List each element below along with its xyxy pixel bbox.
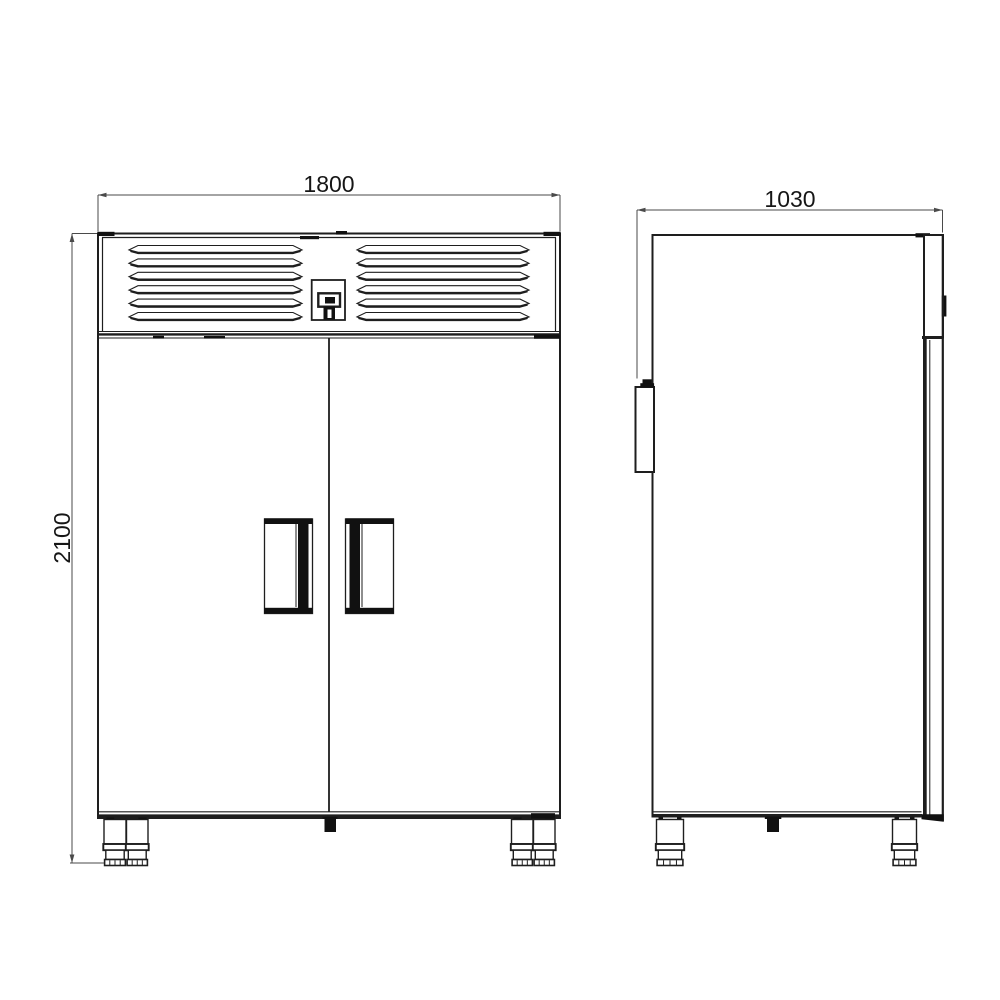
dim-arrow-left: [637, 208, 646, 213]
hinge-bracket: [924, 235, 943, 338]
top-right-corner-cap: [544, 232, 561, 236]
drain-cap: [323, 817, 338, 819]
dimension-front-height: 2100: [49, 234, 104, 864]
top-left-corner-cap: [98, 232, 115, 236]
door-top-hinge-mark-1: [153, 336, 164, 339]
junction-box: [636, 379, 655, 472]
drain-spout: [325, 819, 337, 832]
control-stem-slot: [328, 310, 332, 319]
top-edge-tick: [336, 231, 347, 235]
handle-grip: [298, 523, 309, 609]
dim-arrow-left: [98, 193, 107, 198]
leg-lower: [128, 850, 146, 859]
leg-body: [534, 820, 556, 845]
side-legs: [656, 818, 917, 866]
side-drain-spout: [767, 819, 779, 832]
door-top-hinge-mark-2: [204, 336, 225, 339]
door-bottom-wedge: [922, 814, 944, 822]
display-screen: [325, 297, 335, 304]
leg-band: [126, 844, 149, 850]
leg-band: [511, 844, 534, 850]
dim-arrow-right: [934, 208, 943, 213]
refrigerator-dimension-drawing: 1800 2100 1030: [0, 0, 1000, 1000]
door-handle-left: [264, 518, 313, 613]
leg-body: [893, 820, 917, 845]
leg-body: [127, 820, 149, 845]
dimension-front-width: 1800: [98, 171, 560, 232]
leg-body: [104, 820, 126, 845]
dim-arrow-top: [70, 234, 75, 243]
handle-bottom-bar: [346, 608, 395, 614]
dimension-front-height-label: 2100: [49, 512, 75, 563]
leg-lower: [535, 850, 553, 859]
leg-body: [657, 820, 684, 845]
leg-band: [103, 844, 126, 850]
vent-top-tick: [300, 236, 319, 239]
dim-arrow-bottom: [70, 855, 75, 864]
door-handle-right: [346, 518, 395, 613]
side-view: [636, 233, 947, 865]
front-view: [98, 231, 561, 866]
leg-lower: [658, 850, 681, 859]
side-drain-cap: [765, 817, 782, 819]
handle-bottom-bar: [264, 608, 313, 614]
door-top-hinge-mark-3: [534, 334, 560, 338]
leg-band: [533, 844, 556, 850]
dimension-side-depth-label: 1030: [764, 186, 815, 212]
leg-body: [512, 820, 534, 845]
leg-lower: [106, 850, 124, 859]
junction-box-cap-top: [643, 379, 652, 383]
dim-arrow-right: [552, 193, 561, 198]
control-panel: [312, 280, 345, 320]
handle-grip: [350, 523, 361, 609]
dimension-front-width-label: 1800: [303, 171, 354, 197]
junction-box-cap: [640, 383, 654, 387]
leg-lower: [894, 850, 914, 859]
side-cabinet-outline: [653, 235, 925, 817]
leg-band: [656, 844, 684, 850]
junction-box-body: [636, 387, 655, 472]
leg-band: [892, 844, 917, 850]
technical-drawing-page: 1800 2100 1030: [0, 0, 1000, 1000]
side-door: [922, 235, 947, 822]
leg-lower: [513, 850, 531, 859]
